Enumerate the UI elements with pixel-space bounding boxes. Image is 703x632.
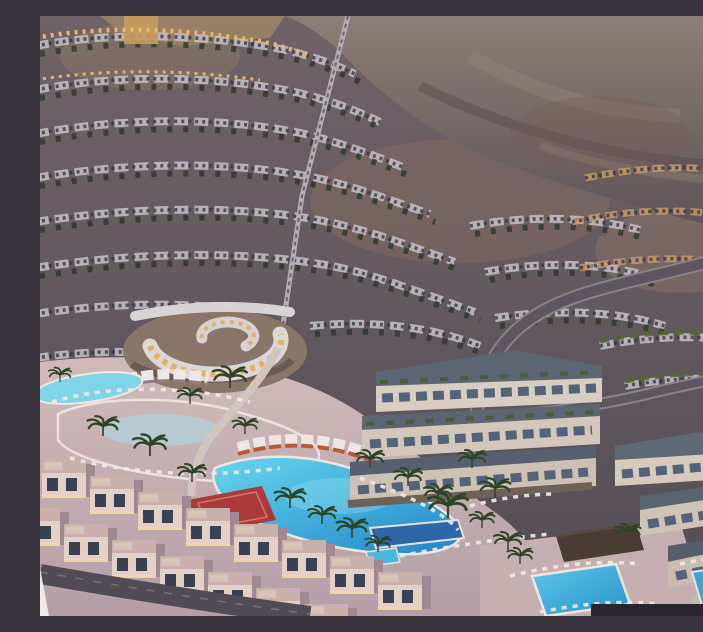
render-canvas	[40, 16, 703, 616]
bottom-right-dark-panel	[591, 604, 703, 616]
resort-aerial-render: Masterplan render at dusk: curved rows o…	[40, 16, 703, 616]
apartment-terraces	[348, 350, 602, 504]
